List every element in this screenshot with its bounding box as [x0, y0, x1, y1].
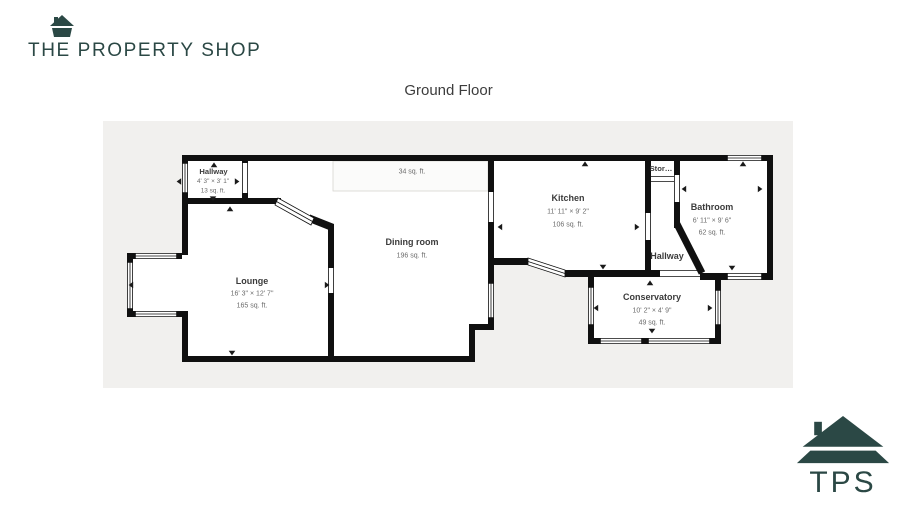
brand-name: THE PROPERTY SHOP [28, 40, 261, 62]
floor-plan: Hallway 4' 3" × 3' 1" 13 sq. ft. 34 sq. … [103, 121, 793, 388]
page-title: Ground Floor [0, 82, 897, 99]
badge-label: TPS [795, 466, 891, 500]
room-area: 106 sq. ft. [553, 222, 584, 229]
house-badge-icon [795, 416, 891, 466]
room-area: 165 sq. ft. [237, 303, 268, 310]
room-label-storage: Stor… [650, 164, 673, 173]
arrow-left-icon [177, 178, 182, 185]
room-dims: 16' 3" × 12' 7" [231, 291, 274, 298]
room-name: Kitchen [551, 193, 584, 203]
room-label-hallway-front: Hallway 4' 3" × 3' 1" 13 sq. ft. [197, 167, 229, 195]
floor-plan-svg: Hallway 4' 3" × 3' 1" 13 sq. ft. 34 sq. … [103, 121, 793, 388]
house-icon [50, 15, 74, 39]
room-dims: 11' 11" × 9' 2" [547, 209, 589, 216]
room-dims: 10' 2" × 4' 9" [633, 308, 672, 315]
room-area: 196 sq. ft. [397, 253, 428, 260]
room-name: Dining room [386, 237, 439, 247]
room-label-hallway-rear: Hallway [650, 251, 684, 261]
room-area: 49 sq. ft. [639, 320, 666, 327]
room-dims: 6' 11" × 9' 6" [693, 218, 732, 225]
room-name: Conservatory [623, 292, 681, 302]
room-name: Hallway [650, 251, 684, 261]
room-name: Lounge [236, 276, 269, 286]
room-area: 62 sq. ft. [699, 230, 726, 237]
room-dims: 4' 3" × 3' 1" [197, 178, 229, 185]
room-name: Stor… [650, 164, 673, 173]
room-name: Hallway [199, 167, 228, 176]
room-area: 34 sq. ft. [399, 169, 426, 176]
room-area: 13 sq. ft. [201, 188, 226, 195]
room-label-kitchen: Kitchen 11' 11" × 9' 2" 106 sq. ft. [547, 193, 589, 229]
reduced-headroom-area [333, 161, 488, 191]
room-label-reduced-area: 34 sq. ft. [399, 169, 426, 176]
room-name: Bathroom [691, 202, 734, 212]
